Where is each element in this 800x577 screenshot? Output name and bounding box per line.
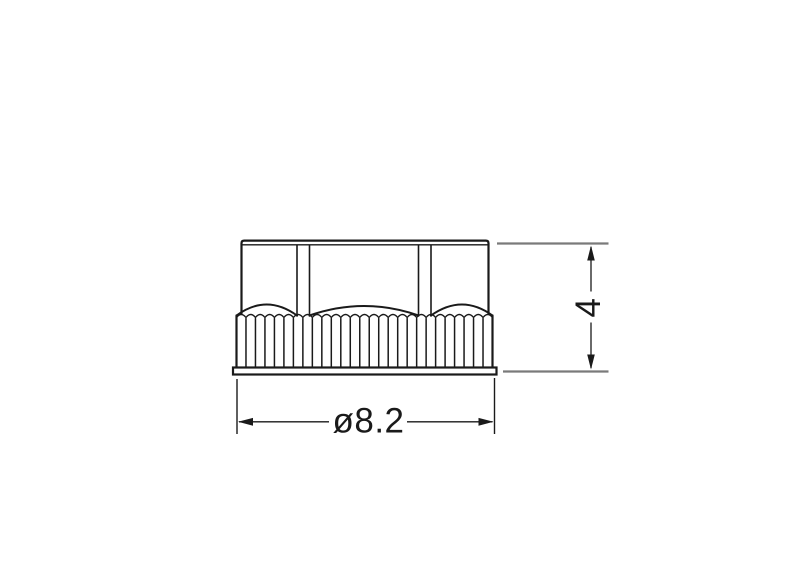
arrowhead-down bbox=[587, 355, 595, 370]
arrowhead-left bbox=[238, 418, 253, 426]
technical-drawing: ø8.2 4 bbox=[0, 0, 800, 577]
diameter-dimension-label: ø8.2 bbox=[332, 402, 404, 441]
knurl-scallop-tops bbox=[237, 315, 493, 318]
cap-body-outline bbox=[242, 241, 489, 314]
cap-view bbox=[233, 241, 497, 375]
knurl-pattern bbox=[237, 315, 493, 368]
diameter-dimension: ø8.2 bbox=[237, 378, 495, 441]
arrowhead-up bbox=[587, 246, 595, 261]
knurl-ridge-lines bbox=[246, 319, 483, 368]
drawing-canvas: ø8.2 4 bbox=[0, 0, 800, 577]
arrowhead-right bbox=[479, 418, 494, 426]
height-dimension-label: 4 bbox=[569, 298, 608, 318]
cap-base-flange bbox=[233, 368, 497, 375]
height-dimension: 4 bbox=[497, 244, 609, 372]
